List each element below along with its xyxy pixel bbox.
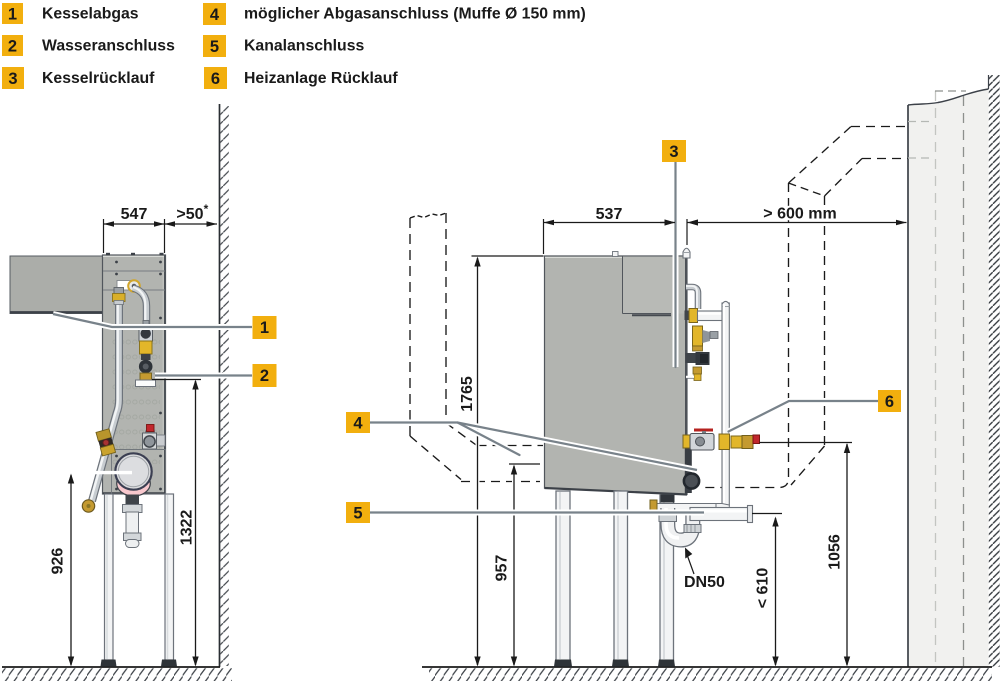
- svg-text:Kesselrücklauf: Kesselrücklauf: [42, 70, 155, 87]
- svg-text:Wasseranschluss: Wasseranschluss: [42, 38, 175, 55]
- svg-text:1: 1: [260, 319, 269, 337]
- svg-text:möglicher Abgasanschluss (Muff: möglicher Abgasanschluss (Muffe Ø 150 mm…: [244, 6, 586, 23]
- svg-text:1056: 1056: [827, 534, 844, 570]
- svg-text:4: 4: [210, 6, 220, 24]
- svg-text:Kanalanschluss: Kanalanschluss: [244, 38, 364, 55]
- svg-text:DN50: DN50: [684, 574, 725, 591]
- svg-text:4: 4: [353, 415, 363, 433]
- svg-text:3: 3: [669, 143, 678, 161]
- svg-text:>50: >50: [176, 206, 203, 223]
- svg-text:1322: 1322: [179, 510, 196, 546]
- svg-text:*: *: [204, 202, 209, 216]
- svg-text:2: 2: [8, 38, 17, 56]
- svg-text:957: 957: [494, 555, 511, 582]
- svg-text:926: 926: [50, 548, 67, 575]
- svg-text:3: 3: [8, 70, 17, 88]
- svg-text:547: 547: [121, 206, 148, 223]
- svg-text:6: 6: [211, 70, 220, 88]
- svg-text:Heizanlage Rücklauf: Heizanlage Rücklauf: [244, 70, 398, 87]
- svg-text:5: 5: [353, 505, 362, 523]
- svg-text:1: 1: [8, 6, 17, 24]
- svg-text:< 610: < 610: [755, 568, 772, 609]
- svg-text:2: 2: [260, 367, 269, 385]
- svg-text:> 600 mm: > 600 mm: [763, 206, 836, 223]
- svg-text:537: 537: [596, 206, 623, 223]
- svg-text:Kesselabgas: Kesselabgas: [42, 6, 139, 23]
- svg-text:6: 6: [885, 393, 894, 411]
- svg-text:5: 5: [210, 38, 219, 56]
- svg-text:1765: 1765: [459, 376, 476, 412]
